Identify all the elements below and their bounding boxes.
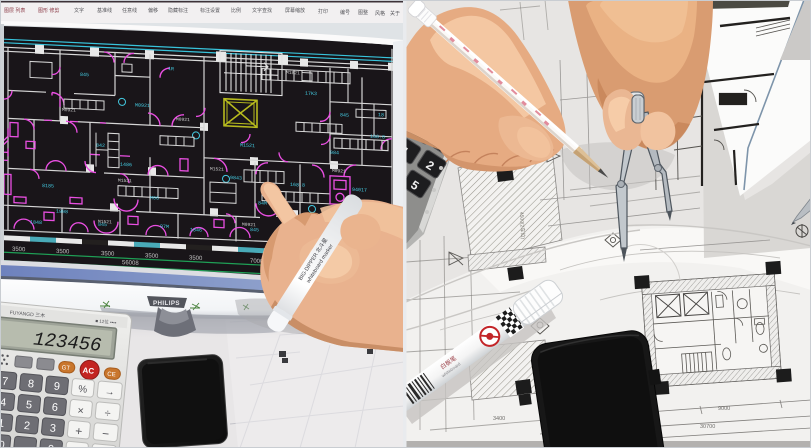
svg-text:7: 7 xyxy=(1,376,8,389)
svg-text:84M: 84M xyxy=(258,200,267,206)
svg-text:168.8: 168.8 xyxy=(290,182,305,189)
svg-text:842: 842 xyxy=(96,143,105,149)
svg-text:M1521: M1521 xyxy=(98,219,112,226)
svg-text:1846: 1846 xyxy=(190,227,202,234)
svg-text:4: 4 xyxy=(0,396,7,409)
svg-text:M0921: M0921 xyxy=(242,222,256,229)
svg-text:984: 984 xyxy=(330,150,339,156)
svg-text:M06: M06 xyxy=(150,195,159,201)
svg-text:关于: 关于 xyxy=(390,10,400,17)
svg-text:3400: 3400 xyxy=(493,416,505,422)
svg-text:M1521: M1521 xyxy=(210,166,224,173)
svg-text:M1521: M1521 xyxy=(240,143,255,150)
svg-text:→: → xyxy=(104,386,115,398)
svg-text:M1521: M1521 xyxy=(118,178,132,185)
svg-text:打印: 打印 xyxy=(318,8,328,15)
svg-text:CE: CE xyxy=(107,372,116,379)
svg-text:845: 845 xyxy=(340,112,349,118)
svg-text:2: 2 xyxy=(23,420,30,433)
svg-text:M0921: M0921 xyxy=(176,116,190,123)
svg-text:97M: 97M xyxy=(160,224,169,230)
svg-text:M0921: M0921 xyxy=(135,102,150,109)
svg-text:任意线: 任意线 xyxy=(122,7,137,14)
svg-text:+: + xyxy=(75,424,83,439)
svg-text:8185: 8185 xyxy=(42,183,54,190)
svg-text:图形 修剪: 图形 修剪 xyxy=(38,7,59,14)
svg-text:3: 3 xyxy=(49,422,56,435)
svg-text:%: % xyxy=(78,384,88,396)
svg-text:9: 9 xyxy=(53,381,60,394)
svg-text:文字查找: 文字查找 xyxy=(252,7,272,14)
svg-text:图层 列表: 图层 列表 xyxy=(4,7,25,14)
svg-text:1R: 1R xyxy=(168,66,174,72)
svg-text:30700: 30700 xyxy=(700,424,715,430)
svg-text:18: 18 xyxy=(378,112,384,118)
svg-text:168.8: 168.8 xyxy=(370,134,385,141)
svg-text:图整: 图整 xyxy=(358,9,368,16)
svg-text:9843: 9843 xyxy=(230,175,242,182)
svg-text:风格: 风格 xyxy=(375,10,385,17)
svg-text:编号: 编号 xyxy=(340,9,350,16)
svg-text:隐藏标注: 隐藏标注 xyxy=(168,7,188,14)
svg-text:1998: 1998 xyxy=(56,209,68,216)
svg-text:M0921: M0921 xyxy=(332,168,346,175)
svg-text:56008: 56008 xyxy=(122,260,139,267)
svg-text:GT: GT xyxy=(61,365,70,372)
svg-text:PHILIPS: PHILIPS xyxy=(153,300,180,307)
svg-text:1486: 1486 xyxy=(120,162,132,169)
svg-text:AC: AC xyxy=(82,366,95,376)
svg-text:×: × xyxy=(77,405,85,418)
svg-text:17K3: 17K3 xyxy=(305,91,317,98)
svg-text:标注设置: 标注设置 xyxy=(200,7,220,14)
svg-text:M1821: M1821 xyxy=(286,70,300,77)
svg-text:1848: 1848 xyxy=(30,219,42,226)
svg-text:8: 8 xyxy=(27,378,34,391)
svg-text:−: − xyxy=(101,426,109,441)
svg-text:÷: ÷ xyxy=(104,408,111,421)
svg-text:94017: 94017 xyxy=(352,187,367,194)
svg-text:文字: 文字 xyxy=(74,7,84,14)
svg-text:基准线: 基准线 xyxy=(97,7,112,14)
svg-text:845: 845 xyxy=(80,72,89,78)
svg-text:9000: 9000 xyxy=(718,406,730,412)
svg-text:6: 6 xyxy=(51,401,58,414)
svg-text:.: . xyxy=(23,441,27,448)
svg-text:偏移: 偏移 xyxy=(148,7,158,14)
svg-text:比例: 比例 xyxy=(231,7,241,14)
svg-text:4500(2车位): 4500(2车位) xyxy=(518,212,526,240)
svg-text:屏幕缩放: 屏幕缩放 xyxy=(285,7,305,14)
svg-text:5: 5 xyxy=(25,399,32,412)
